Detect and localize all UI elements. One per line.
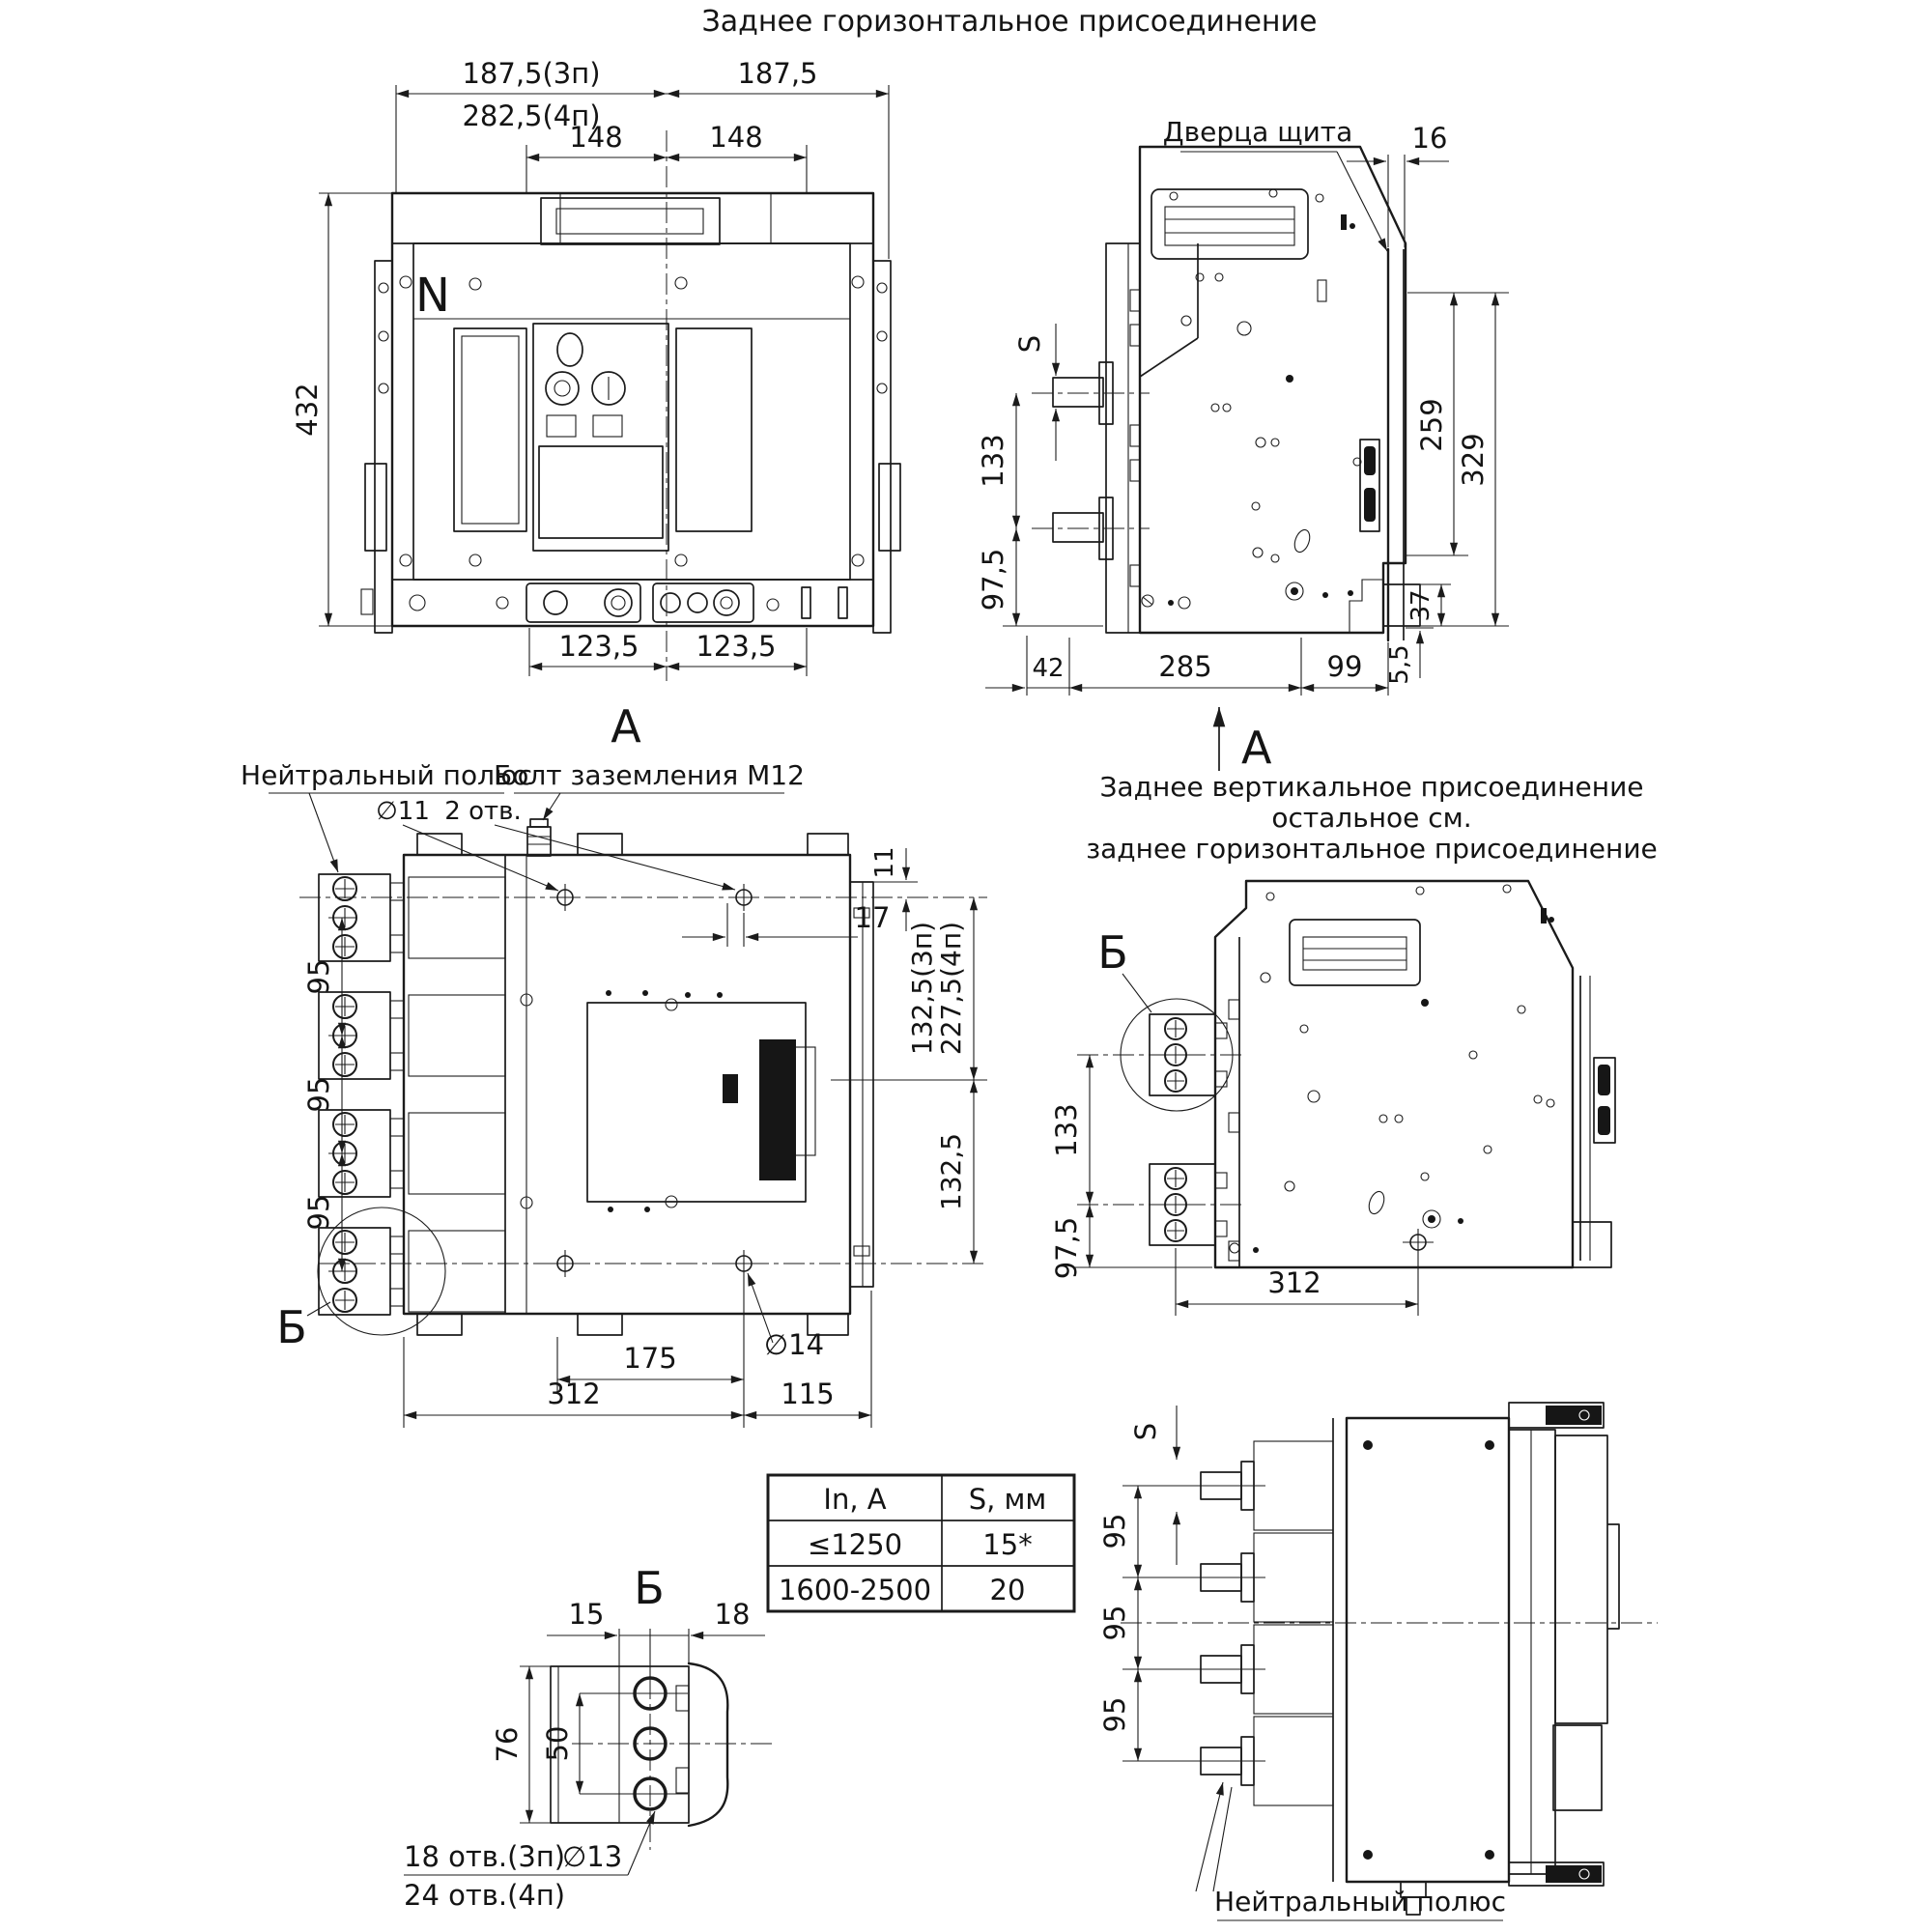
bottom-view: [1121, 1403, 1658, 1915]
dim-5-5: 5,5: [1385, 644, 1414, 684]
vertical-view-title-1: Заднее вертикальное присоединение: [1099, 771, 1643, 803]
dim-432: 432: [291, 383, 324, 436]
dim-95-b3: 95: [1098, 1697, 1131, 1733]
dim-133-vertical: 133: [1050, 1103, 1083, 1156]
dim-227-4p: 227,5(4п): [935, 922, 967, 1055]
dim-95-b2: 95: [1098, 1605, 1131, 1641]
dim-95-1: 95: [302, 959, 335, 995]
dim-50: 50: [541, 1726, 574, 1762]
door-label: Дверца щита: [1163, 116, 1353, 148]
dim-s-bottom: S: [1129, 1423, 1162, 1440]
dim-259: 259: [1415, 398, 1448, 451]
front-view: [361, 130, 900, 681]
dim-133-side: 133: [977, 434, 1009, 487]
vertical-view: Заднее вертикальное присоединение осталь…: [1086, 771, 1658, 1267]
dim-37: 37: [1406, 589, 1435, 621]
detail-b-title: Б: [634, 1562, 665, 1614]
vertical-view-title-3: заднее горизонтальное присоединение: [1086, 833, 1658, 865]
front-view-section-label: А: [611, 700, 641, 753]
detail-b: Б 15 18 76 50 18 отв.(3п) ∅13: [404, 1562, 773, 1912]
spec-table: In, A S, мм ≤1250 15* 1600-2500 20: [768, 1475, 1074, 1611]
side-view: [1032, 147, 1420, 640]
dim-17: 17: [855, 901, 891, 934]
top-view-detail-label: Б: [276, 1301, 307, 1353]
dim-s-side: S: [1013, 335, 1046, 353]
vertical-view-detail-label: Б: [1097, 926, 1128, 979]
dim-11: 11: [870, 846, 899, 878]
neutral-pole-label-bottom: Нейтральный полюс: [1214, 1886, 1506, 1918]
side-view-dimensions: Дверца щита 16 S 133 97,5 259 329 37 5,5: [977, 116, 1509, 774]
technical-drawing: Заднее горизонтальное присоединение: [0, 0, 1932, 1932]
dim-42: 42: [1032, 654, 1064, 683]
dim-97-vertical: 97,5: [1050, 1217, 1083, 1280]
vertical-view-title-2: остальное см.: [1271, 802, 1471, 834]
dim-187-3p: 187,5(3п): [462, 57, 600, 90]
dim-76: 76: [491, 1727, 524, 1763]
dim-95-3: 95: [302, 1195, 335, 1231]
dim-15: 15: [569, 1598, 605, 1631]
dim-95-2: 95: [302, 1077, 335, 1113]
drawing-page: Заднее горизонтальное присоединение: [0, 0, 1932, 1932]
dim-97-side: 97,5: [977, 549, 1009, 611]
dim-148-right: 148: [709, 121, 762, 154]
side-view-section-label: А: [1241, 722, 1272, 774]
bottom-view-dimensions: S 95 95 95 Нейтральный полюс: [1098, 1406, 1506, 1920]
dim-312: 312: [547, 1378, 600, 1410]
dim-312-vertical: 312: [1267, 1266, 1321, 1299]
dim-2-holes: 2 отв.: [444, 797, 521, 826]
dim-95-b1: 95: [1098, 1514, 1131, 1549]
table-row2-s: 20: [990, 1574, 1026, 1606]
dim-187: 187,5: [737, 57, 817, 90]
dim-175: 175: [623, 1342, 676, 1375]
table-header-s: S, мм: [969, 1483, 1047, 1516]
ground-bolt-label: Болт заземления М12: [494, 759, 805, 791]
dim-329: 329: [1457, 433, 1490, 486]
dim-115: 115: [781, 1378, 834, 1410]
dim-18: 18: [715, 1598, 751, 1631]
neutral-pole-label: Нейтральный полюс: [241, 759, 532, 791]
dim-132-3p: 132,5(3п): [906, 922, 938, 1055]
table-row1-s: 15*: [982, 1528, 1032, 1561]
main-title: Заднее горизонтальное присоединение: [701, 5, 1317, 39]
dim-148-left: 148: [569, 121, 622, 154]
holes-note-d13: ∅13: [562, 1840, 622, 1873]
front-view-dimensions: 187,5(3п) 187,5 282,5(4п) 148 148 432 12…: [291, 57, 889, 753]
holes-note-4p: 24 отв.(4п): [404, 1879, 565, 1912]
dim-16: 16: [1412, 122, 1448, 155]
dim-123-right: 123,5: [696, 630, 776, 663]
table-row2-in: 1600-2500: [779, 1574, 931, 1606]
top-view: [299, 819, 987, 1335]
holes-note-3p: 18 отв.(3п): [404, 1840, 565, 1873]
dim-132: 132,5: [935, 1133, 967, 1210]
neutral-pole-marking: N: [415, 269, 450, 323]
table-header-in: In, A: [823, 1483, 886, 1516]
table-row1-in: ≤1250: [808, 1528, 902, 1561]
dim-123-left: 123,5: [558, 630, 639, 663]
dim-d11: ∅11: [376, 797, 430, 826]
dim-285: 285: [1158, 650, 1211, 683]
dim-99: 99: [1327, 650, 1363, 683]
dim-d14: ∅14: [764, 1328, 824, 1361]
